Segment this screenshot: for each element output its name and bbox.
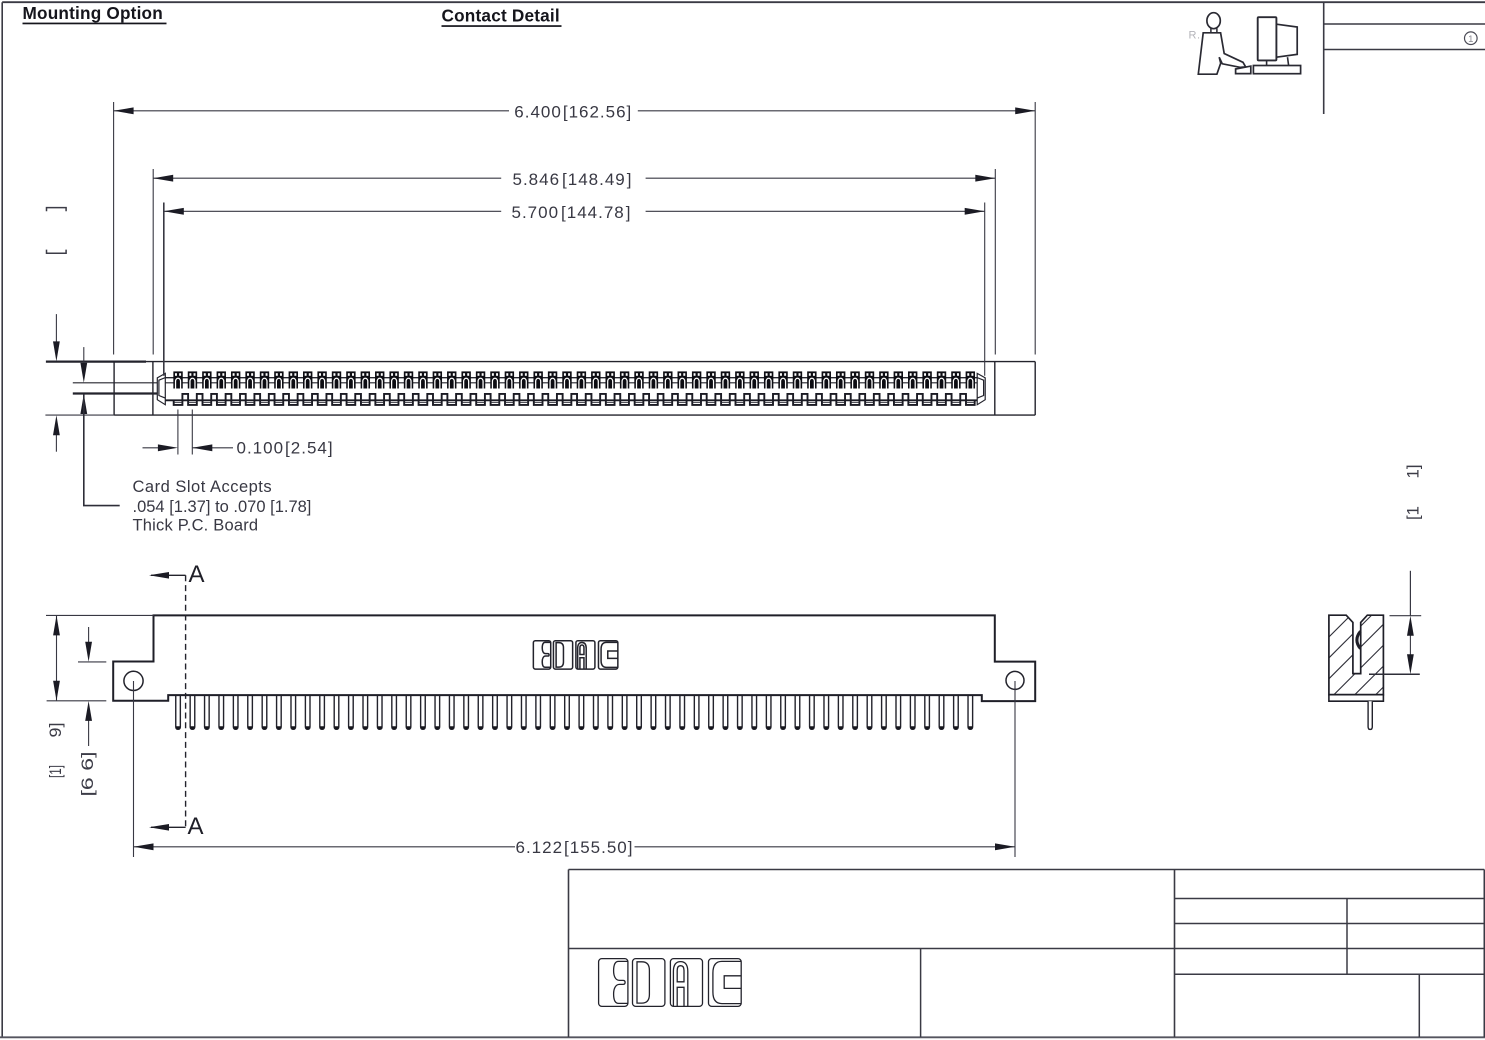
svg-text:6.122[155.50]: 6.122[155.50] xyxy=(515,838,633,857)
svg-text:[1]: [1] xyxy=(47,765,65,778)
svg-text:Thick P.C. Board: Thick P.C. Board xyxy=(133,517,259,535)
svg-text:9]: 9] xyxy=(47,723,65,738)
svg-text:5.700[144.78]: 5.700[144.78] xyxy=(511,203,631,222)
svg-text:R.: R. xyxy=(1189,30,1201,42)
svg-text:5.846[148.49]: 5.846[148.49] xyxy=(512,170,632,189)
svg-text:[1: [1 xyxy=(1405,506,1423,520)
svg-text:A: A xyxy=(188,813,204,840)
svg-text:Contact Detail: Contact Detail xyxy=(442,5,560,25)
svg-text:0.100[2.54]: 0.100[2.54] xyxy=(237,439,334,458)
svg-text:A: A xyxy=(189,561,205,588)
svg-text:6.400[162.56]: 6.400[162.56] xyxy=(514,102,632,121)
svg-text:1]: 1] xyxy=(1405,465,1423,479)
svg-text:[6 6]: [6 6] xyxy=(79,752,97,797)
svg-text:Mounting Option: Mounting Option xyxy=(23,3,163,23)
svg-text:Card Slot Accepts: Card Slot Accepts xyxy=(133,478,273,496)
svg-text:.054 [1.37] to .070 [1.78]: .054 [1.37] to .070 [1.78] xyxy=(133,498,312,516)
svg-text:1: 1 xyxy=(1468,34,1473,45)
